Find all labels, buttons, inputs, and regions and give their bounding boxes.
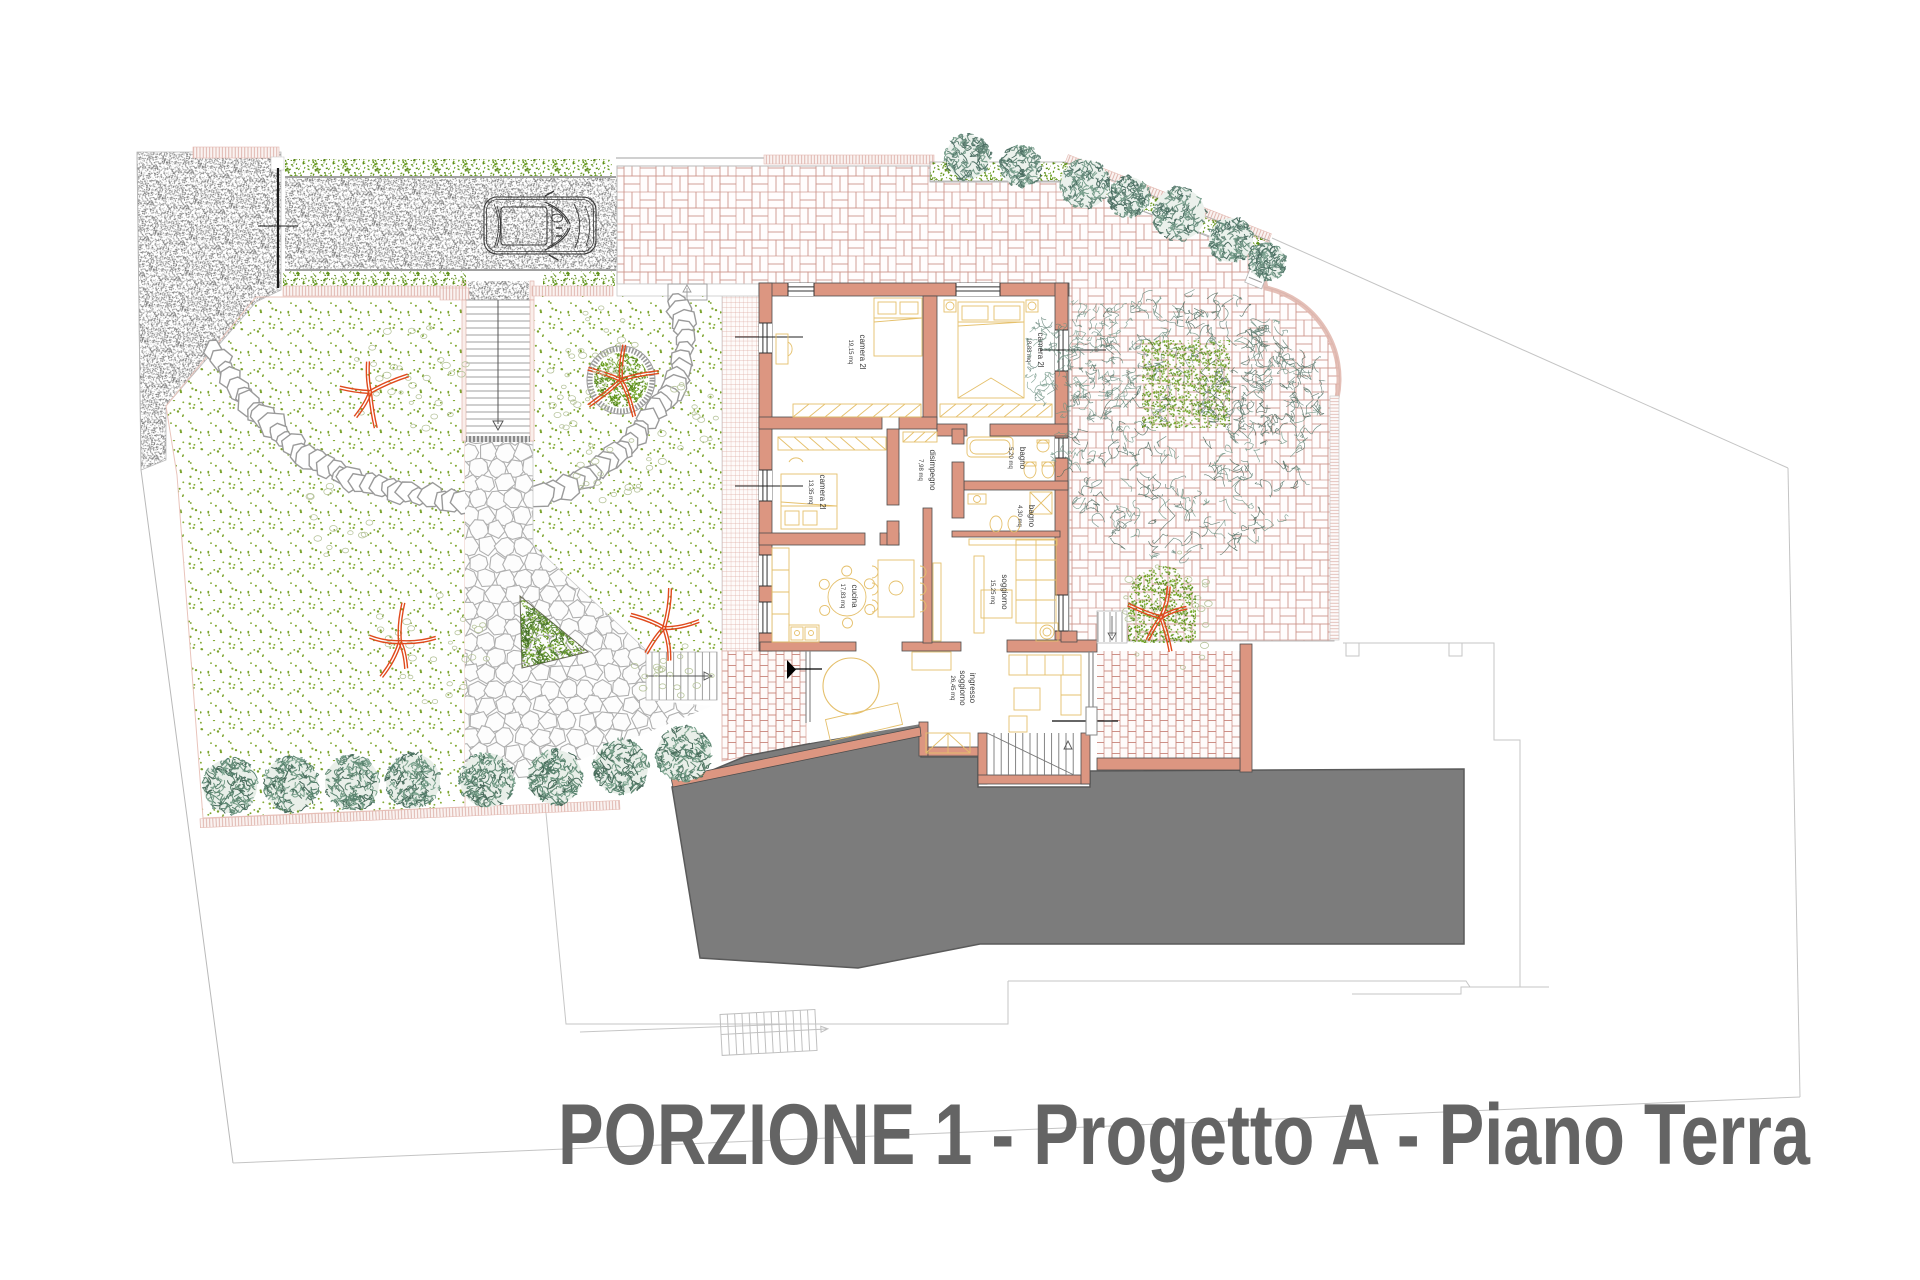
svg-text:bagno: bagno: [1027, 505, 1036, 528]
svg-text:ingresso: ingresso: [968, 673, 977, 704]
svg-text:camera 2l: camera 2l: [818, 474, 827, 509]
svg-text:26,45 mq: 26,45 mq: [949, 675, 955, 700]
svg-text:camera 2l: camera 2l: [858, 334, 867, 369]
svg-text:soggiorno: soggiorno: [1000, 574, 1009, 610]
svg-text:soggiorno: soggiorno: [958, 670, 967, 706]
svg-text:4,30 mq: 4,30 mq: [1016, 505, 1022, 527]
svg-text:PORZIONE 1 - Progetto A - Pian: PORZIONE 1 - Progetto A - Piano Terra: [558, 1087, 1811, 1183]
svg-text:5,20 mq: 5,20 mq: [1007, 447, 1013, 469]
svg-text:13,35 mq: 13,35 mq: [807, 479, 813, 504]
svg-text:19,15 mq: 19,15 mq: [847, 339, 853, 364]
svg-text:17,83 mq: 17,83 mq: [839, 583, 845, 608]
svg-text:18,83 mq: 18,83 mq: [1025, 337, 1031, 362]
svg-text:7,98 mq: 7,98 mq: [917, 459, 923, 481]
svg-text:cucina: cucina: [850, 584, 859, 608]
svg-text:disimpegno: disimpegno: [928, 450, 937, 491]
svg-text:15,25 mq: 15,25 mq: [989, 579, 995, 604]
svg-text:bagno: bagno: [1018, 447, 1027, 470]
